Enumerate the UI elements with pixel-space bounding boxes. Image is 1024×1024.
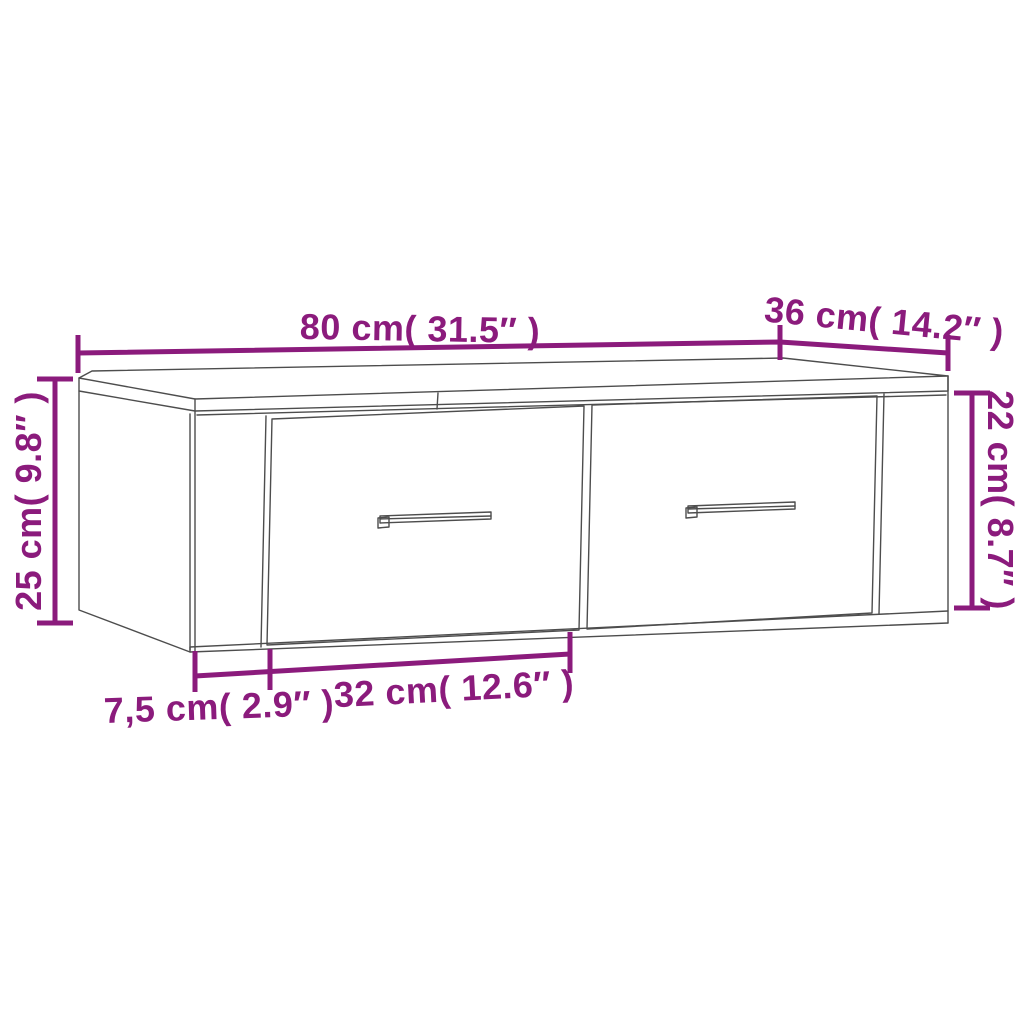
width-depth-dimension: 80 cm( 31.5″ ) 36 cm( 14.2″ ) — [78, 289, 1006, 373]
cabinet-drawing — [79, 358, 948, 652]
back-panel-joint — [437, 393, 438, 409]
top-slab-top-face — [79, 358, 948, 399]
drawer-width-dimension-label: 32 cm( 12.6″ ) — [333, 662, 575, 716]
right-drawer-front — [587, 396, 877, 629]
top-slab-left-band — [79, 378, 195, 411]
diagram-svg: 80 cm( 31.5″ ) 36 cm( 14.2″ ) 25 cm( 9.8… — [0, 0, 1024, 1024]
left-side-panel — [79, 391, 195, 652]
top-slab-front-band — [195, 376, 948, 411]
front-height-dimension-label: 22 cm( 8.7″ ) — [980, 390, 1021, 610]
side-width-dimension-label: 7,5 cm( 2.9″ ) — [103, 682, 335, 731]
right-drawer-handle — [686, 502, 795, 518]
left-drawer-front — [267, 406, 584, 645]
height-dimension: 25 cm( 9.8″ ) — [8, 379, 73, 623]
left-drawer-handle — [378, 512, 491, 528]
width-dimension-label: 80 cm( 31.5″ ) — [300, 306, 541, 351]
opening-right-edge — [879, 394, 884, 614]
opening-left-edge — [261, 416, 266, 647]
dimension-diagram: 80 cm( 31.5″ ) 36 cm( 14.2″ ) 25 cm( 9.8… — [0, 0, 1024, 1024]
front-height-dimension: 22 cm( 8.7″ ) — [954, 390, 1021, 610]
height-dimension-label: 25 cm( 9.8″ ) — [8, 391, 49, 611]
